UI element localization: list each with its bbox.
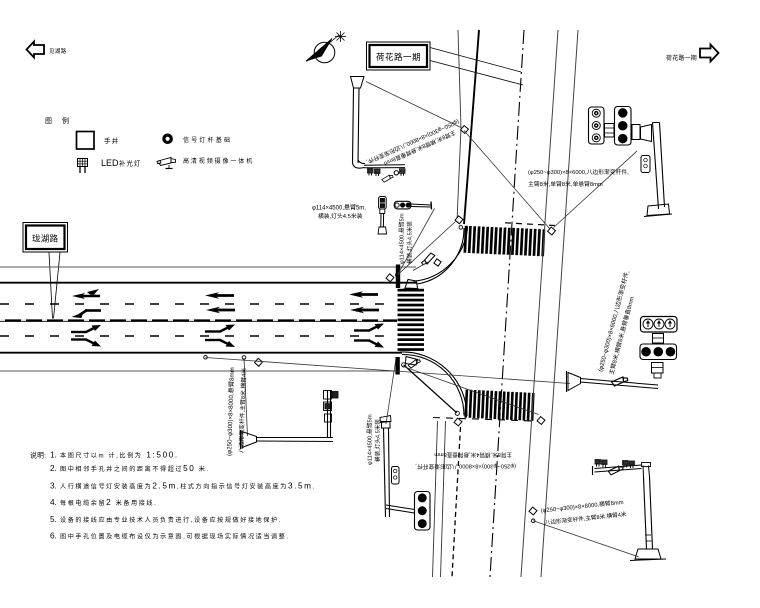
svg-text:6.: 6.: [50, 532, 57, 541]
svg-text:横装,灯头4.5米装: 横装,灯头4.5米装: [406, 221, 414, 264]
svg-text:φ114×4500,悬臂5m,: φ114×4500,悬臂5m,: [312, 204, 366, 212]
svg-text:5.: 5.: [50, 515, 57, 524]
svg-text:荷花路一期: 荷花路一期: [666, 54, 697, 62]
svg-text:图中手孔位置及电缆布设仅为示意图,可根据现场实际情况适当调整: 图中手孔位置及电缆布设仅为示意图,可根据现场实际情况适当调整.: [60, 533, 290, 541]
svg-text:信号灯杆基础: 信号灯杆基础: [183, 136, 232, 144]
svg-text:本图尺寸以m 计,比例为 1:500.: 本图尺寸以m 计,比例为 1:500.: [60, 451, 179, 460]
svg-text:珑湖路: 珑湖路: [32, 234, 59, 244]
svg-text:φ114×4500,悬臂5m: φ114×4500,悬臂5m: [398, 213, 406, 264]
svg-text:每根电缆余留2 米备用接线.: 每根电缆余留2 米备用接线.: [60, 498, 157, 507]
svg-text:LED: LED: [101, 158, 119, 168]
svg-text:图: 图: [45, 117, 52, 125]
svg-text:3.: 3.: [50, 482, 57, 491]
svg-text:补光灯: 补光灯: [119, 159, 142, 168]
svg-text:φ114×4500,悬臂5m: φ114×4500,悬臂5m: [366, 414, 374, 465]
svg-text:横装,灯头4.5米装: 横装,灯头4.5米装: [318, 212, 363, 220]
svg-text:手井: 手井: [104, 136, 119, 145]
svg-text:例: 例: [62, 116, 69, 125]
svg-text:见湖路: 见湖路: [49, 47, 67, 55]
svg-text:4.: 4.: [50, 498, 57, 507]
svg-text:人行横道信号灯安装高度为2.5m,柱式方向指示信号灯安装高度: 人行横道信号灯安装高度为2.5m,柱式方向指示信号灯安装高度为3.5m.: [60, 482, 316, 491]
svg-text:主臂8米,单臂8米,单悬臂8mm: 主臂8米,单臂8米,单悬臂8mm: [528, 180, 603, 188]
svg-text:高清视频摄像一体机: 高清视频摄像一体机: [183, 157, 254, 165]
svg-text:(φ250~φ300)×8×8000,八边形渐变杆件,: (φ250~φ300)×8×8000,八边形渐变杆件,: [415, 463, 516, 471]
svg-text:设备的接线应由专业技术人员负责进行,设备应按规做好接地保护.: 设备的接线应由专业技术人员负责进行,设备应按规做好接地保护.: [60, 516, 282, 524]
svg-text:2.: 2.: [50, 464, 57, 473]
svg-text:(φ250~φ300)×8×6000,八边形渐变杆件,: (φ250~φ300)×8×6000,八边形渐变杆件,: [528, 168, 629, 176]
svg-text:荷花路一期: 荷花路一期: [376, 52, 421, 62]
svg-text:说明:: 说明:: [30, 451, 46, 460]
svg-text:横装,灯头4.5米装: 横装,灯头4.5米装: [374, 419, 382, 462]
svg-text:图中相邻手孔井之间的距离不得超过50 米.: 图中相邻手孔井之间的距离不得超过50 米.: [60, 464, 210, 473]
svg-text:主臂8米,横臂4米,悬臂垂直8mm: 主臂8米,横臂4米,悬臂垂直8mm: [434, 451, 512, 459]
svg-text:1.: 1.: [50, 451, 57, 460]
